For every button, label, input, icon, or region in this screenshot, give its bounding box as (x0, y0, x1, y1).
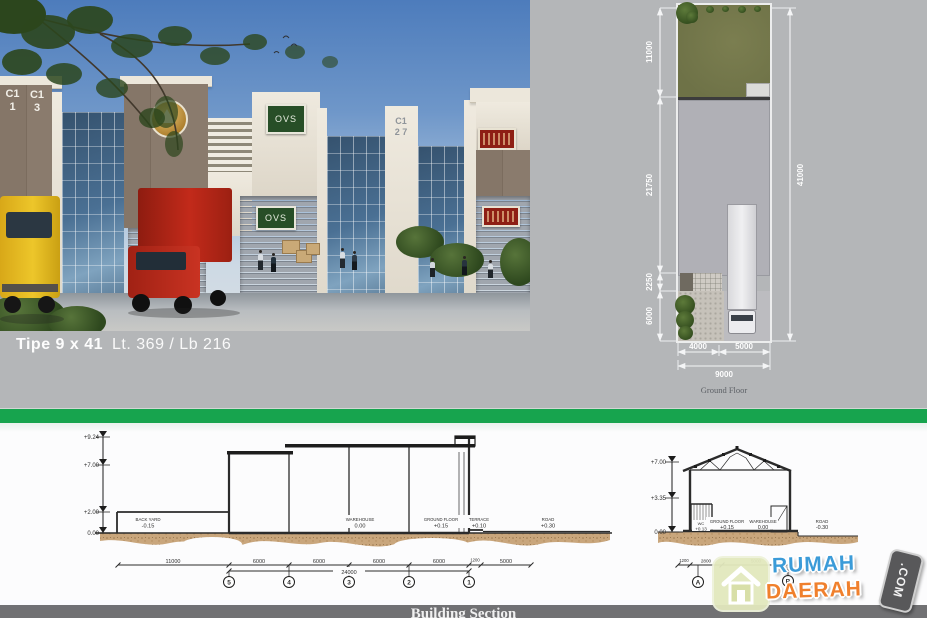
svg-text:24000: 24000 (341, 570, 356, 576)
plan-dim-11000: 11000 (645, 41, 654, 63)
house-icon (712, 556, 770, 612)
svg-text:11000: 11000 (166, 559, 181, 565)
red-restaurant-sign-door (482, 206, 520, 227)
svg-text:GROUND FLOOR: GROUND FLOOR (710, 519, 744, 524)
svg-text:6000: 6000 (373, 559, 385, 565)
type-caption: Tipe 9 x 41Lt. 369 / Lb 216 (16, 336, 231, 354)
yellow-truck (0, 196, 64, 331)
svg-text:4: 4 (287, 580, 291, 587)
svg-text:TERRACE: TERRACE (469, 517, 489, 522)
svg-text:+0.10: +0.10 (472, 524, 486, 530)
svg-text:+0.30: +0.30 (541, 524, 555, 530)
tree-branch-overlay (0, 0, 530, 200)
red-truck (128, 188, 240, 320)
plan-dim-6000: 6000 (645, 307, 654, 325)
building-render-photo: C1 1 C1 3 OVS OVS C1 2 7 (0, 0, 530, 331)
person-silhouette (271, 257, 276, 272)
svg-text:2: 2 (407, 580, 411, 587)
footer-title: Building Section (411, 606, 516, 618)
svg-text:6000: 6000 (313, 559, 325, 565)
plan-dim-5000: 5000 (735, 342, 753, 351)
logo-word-rumah: RUMAH (772, 552, 856, 579)
brochure-page: C1 1 C1 3 OVS OVS C1 2 7 (0, 0, 927, 618)
svg-text:0.00: 0.00 (654, 530, 666, 536)
svg-text:-0.15: -0.15 (142, 524, 155, 530)
plan-dim-2250: 2250 (645, 273, 654, 291)
svg-text:6000: 6000 (253, 559, 265, 565)
plan-title: Ground Floor (701, 385, 748, 395)
svg-text:-0.30: -0.30 (816, 525, 828, 531)
svg-text:+0.13: +0.13 (695, 527, 707, 532)
carton-box (306, 243, 320, 255)
person-silhouette (258, 254, 263, 270)
svg-text:6000: 6000 (433, 559, 445, 565)
svg-text:1: 1 (467, 580, 471, 587)
svg-text:WAREHOUSE: WAREHOUSE (346, 517, 375, 522)
svg-text:GROUND FLOOR: GROUND FLOOR (424, 517, 458, 522)
ovs-sign-door: OVS (256, 206, 296, 230)
svg-text:1200: 1200 (679, 558, 689, 563)
svg-text:5: 5 (227, 580, 231, 587)
svg-text:+9.24: +9.24 (84, 435, 100, 441)
svg-text:WAREHOUSE: WAREHOUSE (749, 519, 777, 524)
svg-text:BACK YARD: BACK YARD (136, 517, 161, 522)
svg-text:+3.35: +3.35 (651, 496, 667, 502)
long-section-labels: +9.24 +7.00 +2.00 0.00 BACK YARD -0.15 W… (84, 435, 555, 587)
svg-text:+0.15: +0.15 (720, 525, 734, 531)
person-silhouette (352, 255, 357, 270)
svg-text:0.00: 0.00 (758, 525, 769, 531)
area-label: Lt. 369 / Lb 216 (112, 336, 231, 353)
plan-dim-41000: 41000 (796, 163, 805, 186)
palm-tree (500, 238, 530, 286)
logo-com-text: .COM (890, 562, 912, 600)
plan-dim-4000: 4000 (689, 342, 707, 351)
svg-text:5000: 5000 (500, 559, 512, 565)
svg-text:+0.15: +0.15 (434, 524, 448, 530)
svg-text:+2.00: +2.00 (84, 510, 100, 516)
person-silhouette (488, 264, 493, 278)
svg-text:3: 3 (347, 580, 351, 587)
svg-text:WC: WC (698, 521, 705, 526)
logo-word-daerah: DAERAH (766, 577, 863, 604)
plan-dimensions: 11000 21750 2250 6000 41000 4000 5000 90… (630, 0, 927, 405)
type-label: Tipe 9 x 41 (16, 336, 103, 353)
person-silhouette (340, 252, 345, 268)
green-divider-bar (0, 408, 927, 424)
palm-tree (430, 243, 484, 277)
svg-text:0.00: 0.00 (87, 531, 99, 537)
svg-text:0.00: 0.00 (355, 524, 366, 530)
plan-dim-21750: 21750 (645, 173, 654, 196)
plan-dim-9000: 9000 (715, 370, 733, 379)
person-silhouette (430, 262, 435, 277)
person-silhouette (462, 260, 467, 275)
svg-text:ROAD: ROAD (816, 519, 829, 524)
svg-text:ROAD: ROAD (542, 517, 555, 522)
svg-text:+7.00: +7.00 (84, 463, 100, 469)
svg-text:1200: 1200 (470, 558, 480, 563)
svg-text:+7.00: +7.00 (651, 460, 667, 466)
